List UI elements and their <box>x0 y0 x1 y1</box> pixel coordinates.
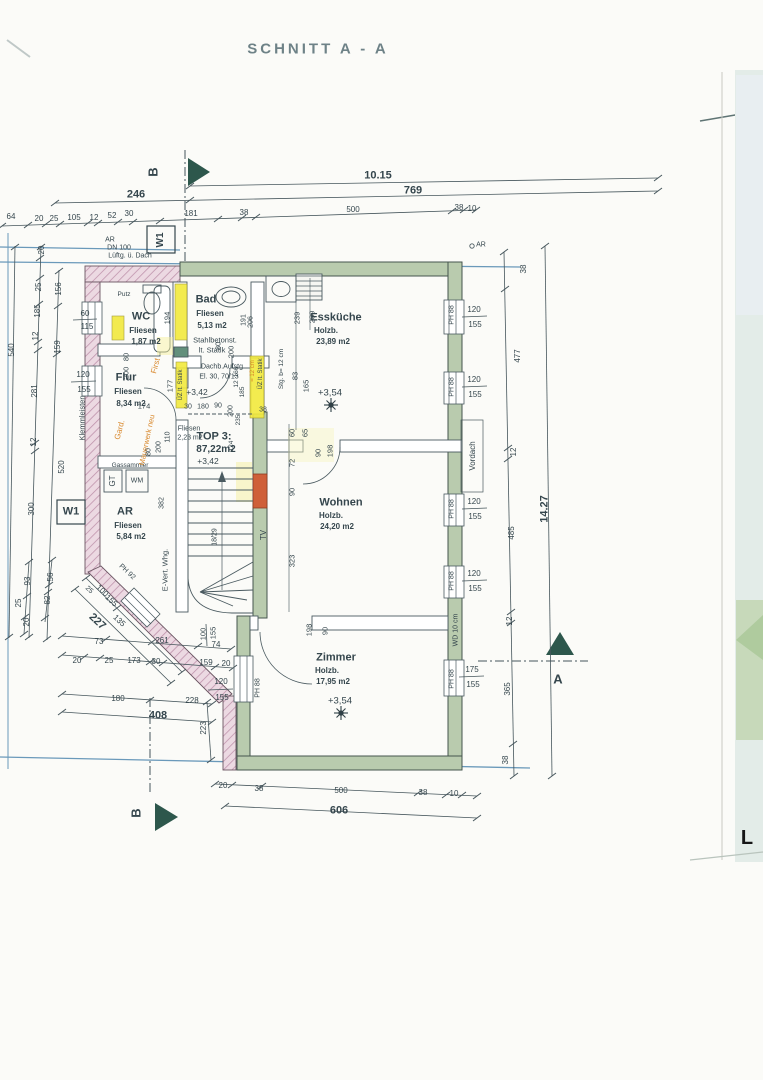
attic-ladder-hatch <box>296 274 322 300</box>
walls-interior <box>98 282 462 630</box>
ar-vent-marker <box>470 244 474 248</box>
section-b-triangle-bottom <box>155 803 178 831</box>
bad-washbasin <box>216 287 246 307</box>
section-b-triangle-top <box>188 158 210 186</box>
w1-box-left <box>57 500 85 524</box>
staircase <box>188 414 253 613</box>
walls-highlighted-yellow <box>112 284 334 502</box>
wm-washing-machine <box>126 470 148 492</box>
floor-plan-drawing <box>0 0 763 1080</box>
level-marker-esskueche <box>324 398 338 412</box>
stair-direction-arrow <box>218 471 226 482</box>
gt-box <box>104 470 122 492</box>
duct-box <box>174 347 188 357</box>
kitchen-sink-unit <box>266 276 296 302</box>
level-marker-zimmer <box>334 706 348 720</box>
vordach-outline <box>461 420 483 492</box>
scanned-floor-plan-page: SCHNITT A - AL10.15246769642025105125230… <box>0 0 763 1080</box>
wall-segment-red <box>253 474 267 508</box>
